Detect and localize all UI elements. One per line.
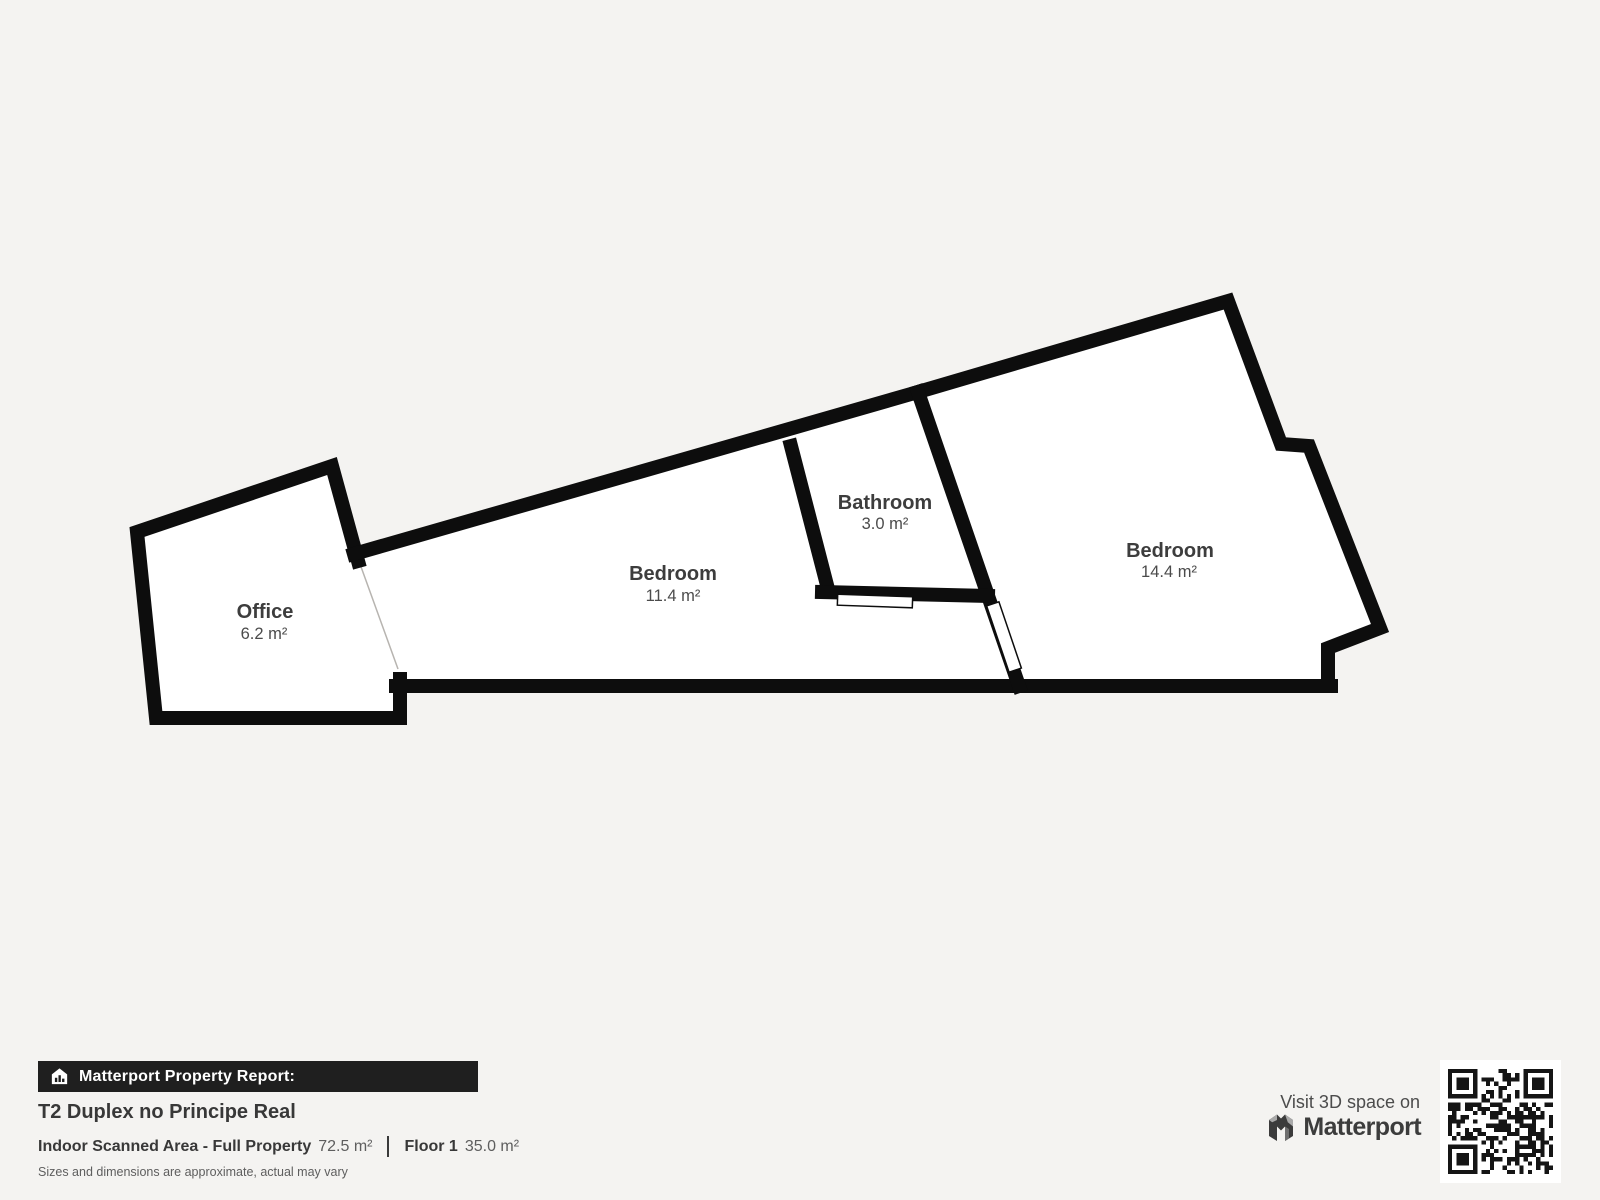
report-disclaimer: Sizes and dimensions are approximate, ac… (38, 1165, 348, 1179)
floor-value: 35.0 m² (465, 1138, 519, 1156)
report-bar-label: Matterport Property Report: (79, 1068, 295, 1086)
qr-code (1440, 1060, 1561, 1183)
room-area: 14.4 m² (1141, 563, 1197, 581)
property-report-page: Office 6.2 m² Bedroom 11.4 m² Bathroom 3… (0, 0, 1600, 1200)
room-floors (137, 301, 1380, 718)
report-info-line: Indoor Scanned Area - Full Property 72.5… (38, 1136, 519, 1157)
room-label: Bathroom (838, 492, 932, 514)
bathroom-door-opening (837, 594, 912, 608)
room-office (137, 466, 400, 718)
scanned-area-label: Indoor Scanned Area - Full Property (38, 1138, 311, 1156)
house-chart-icon (51, 1068, 68, 1085)
report-header-bar: Matterport Property Report: (38, 1061, 478, 1092)
room-area: 11.4 m² (646, 587, 701, 605)
visit-3d-label: Visit 3D space on (1280, 1092, 1420, 1113)
floor-label: Floor 1 (404, 1138, 457, 1156)
room-label: Bedroom (629, 563, 717, 585)
room-area: 6.2 m² (241, 625, 288, 643)
matterport-wordmark: Matterport (1303, 1113, 1421, 1142)
room-label: Bedroom (1126, 540, 1214, 562)
room-area: 3.0 m² (862, 515, 909, 533)
info-divider (387, 1136, 389, 1157)
room-label: Office (237, 601, 294, 623)
floor-plan: Office 6.2 m² Bedroom 11.4 m² Bathroom 3… (0, 0, 1600, 1000)
scanned-area-value: 72.5 m² (318, 1138, 372, 1156)
report-title: T2 Duplex no Principe Real (38, 1101, 296, 1124)
matterport-brand: Matterport (1267, 1113, 1421, 1142)
qr-code-pattern (1448, 1069, 1553, 1174)
matterport-logo-icon (1267, 1113, 1295, 1142)
